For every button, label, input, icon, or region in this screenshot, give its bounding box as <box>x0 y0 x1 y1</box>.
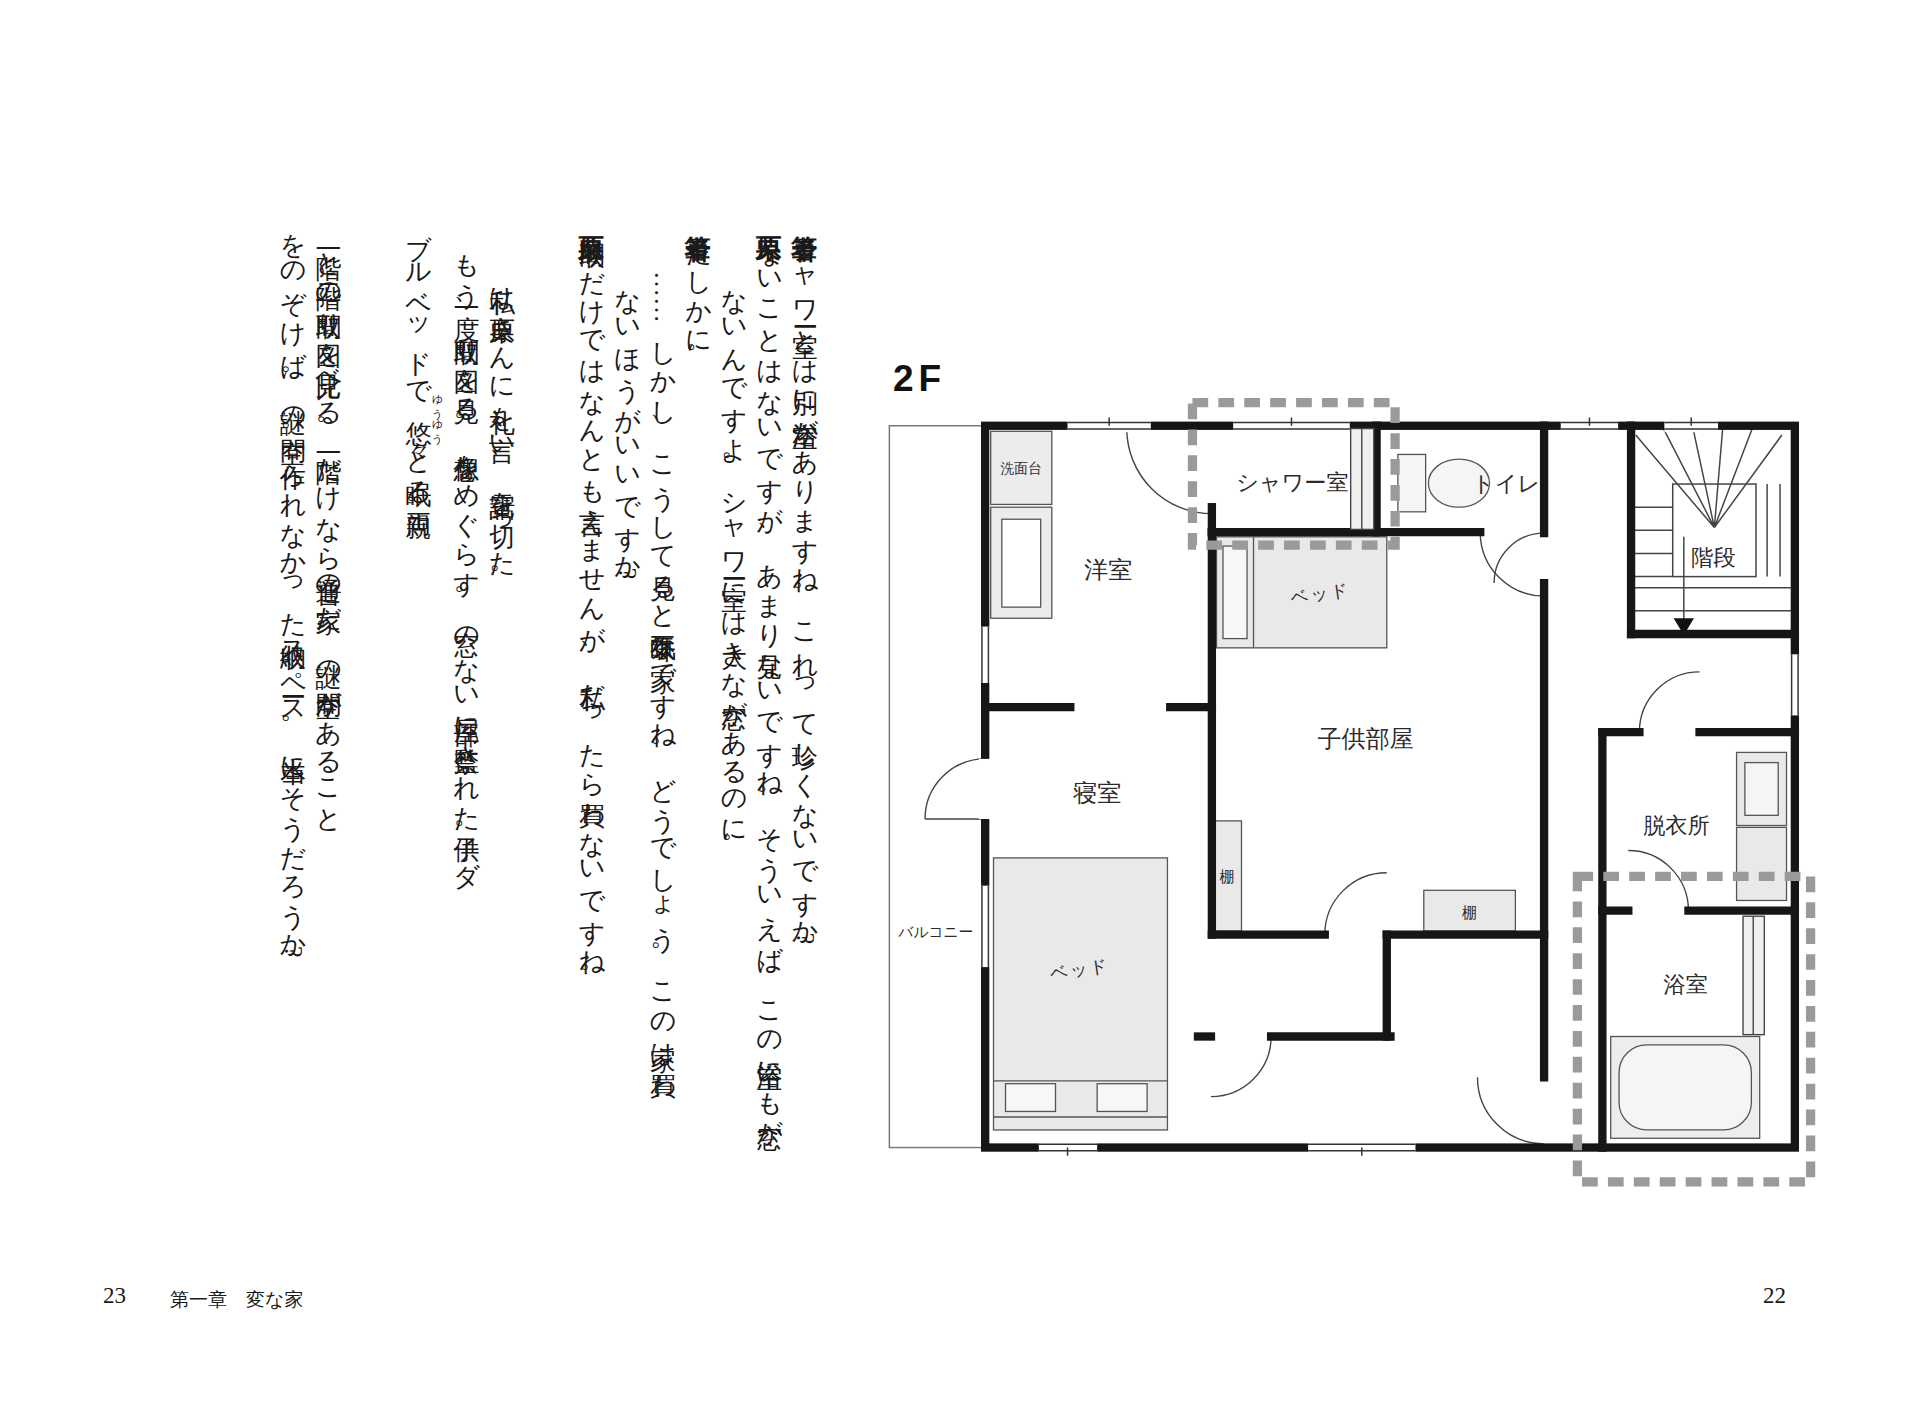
narrative-body: 一階と二階の間取り図を見比べる。一階だけなら普通の家だ。謎の空間があること <box>314 235 343 821</box>
window-left-balcony-door-gap <box>979 759 992 819</box>
narrative-column: もう一度、間取り図を見る。想像をめぐらす。窓のない部屋に監禁された子供。ダ <box>453 215 479 1255</box>
page-number-left: 23 <box>103 1283 126 1309</box>
narrative-column-ruby: ブルベッドで悠々ゆうゆうと眠る両親。 <box>405 215 444 1255</box>
label-kids-room: 子供部屋 <box>1317 725 1413 752</box>
window-top-2 <box>1233 417 1350 432</box>
stairs-icon <box>1634 429 1792 635</box>
vestibule-door-arc <box>1211 1036 1271 1096</box>
narrative-body: と眠る両親。 <box>404 433 433 518</box>
dialogue-continuation: ……しかし、こうして見ると不気味な家ですね。どうでしょう。この家は買わ <box>650 215 676 1255</box>
label-western-room: 洋室 <box>1084 556 1132 583</box>
dialogue-body: たしかに。 <box>684 223 713 368</box>
window-right-1 <box>1788 654 1801 715</box>
dialogue-column: 栗原間取りだけではなんとも言えませんが、私だったら買わないですね。 <box>579 215 605 1255</box>
narrative-body: ブルベッドで <box>404 215 433 393</box>
floor-plan: 洗面台 洋室 シャワー室 トイレ 階段 ベッド 子供部屋 棚 棚 寝室 ベッド … <box>888 398 1818 1203</box>
label-shelf-right: 棚 <box>1462 905 1477 921</box>
window-top-3 <box>1561 417 1618 432</box>
bathtub-icon <box>1611 1036 1760 1138</box>
narrative-body: 私は栗原さんに礼を言い、電話を切った。 <box>488 269 517 589</box>
counter-box <box>1737 827 1787 900</box>
toilet-door-arc <box>1480 532 1544 596</box>
dialogue-column: 筆者シャワー室とは別に浴室がありますね。これって珍しくないですか? <box>792 215 818 1255</box>
dialogue-continuation: ないんですよ。シャワー室には大きな窓があるのに。 <box>721 215 747 1255</box>
window-left-1 <box>979 627 992 683</box>
dialogue-body: 間取りだけではなんとも言えませんが、私だったら買わないですね。 <box>578 223 607 988</box>
floor-label: 2F <box>893 358 946 400</box>
dressing-door-arc <box>1639 672 1699 732</box>
left-page-text: 筆者シャワー室とは別に浴室がありますね。これって珍しくないですか? 栗原ないこと… <box>270 215 827 1255</box>
dialogue-body: ないほうがいいですか? <box>613 271 642 579</box>
label-balcony: バルコニー <box>897 924 973 940</box>
dialogue-body: ないんですよ。シャワー室には大きな窓があるのに。 <box>720 271 749 858</box>
narrative-column: 一階と二階の間取り図を見比べる。一階だけなら普通の家だ。謎の空間があること <box>315 215 341 1255</box>
ruby-annotation: 悠々ゆうゆう <box>404 393 433 433</box>
washer-icon <box>1737 752 1787 825</box>
dialogue-body: シャワー室とは別に浴室がありますね。これって珍しくないですか? <box>791 223 820 944</box>
window-left-2 <box>979 886 992 967</box>
shower-door-arc <box>1127 429 1212 514</box>
balcony <box>889 426 985 1148</box>
dialogue-column: 筆者たしかに。 <box>685 215 711 1255</box>
double-bed <box>993 858 1167 1130</box>
label-dressing-room: 脱衣所 <box>1643 813 1710 838</box>
label-shower-room: シャワー室 <box>1236 470 1349 495</box>
label-bedroom: 寝室 <box>1073 779 1121 806</box>
page-number-right: 22 <box>1763 1283 1786 1309</box>
label-bathroom: 浴室 <box>1663 972 1707 997</box>
kids-room-inner-door-arc <box>1325 873 1387 935</box>
corridor-door-arc <box>1477 1077 1544 1144</box>
speaker-label: 筆者 <box>683 215 713 217</box>
speaker-label: 栗原 <box>577 215 607 217</box>
window-bottom-2 <box>1308 1141 1415 1156</box>
running-header-chapter: 第一章 変な家 <box>170 1287 303 1313</box>
narrative-body: をのぞけば。謎の空間。作られなかった収納スペース。本当にそうだろうか? <box>279 215 308 958</box>
book-spread: { "left_page": { "page_number": "23", "c… <box>0 0 1920 1422</box>
label-stairs: 階段 <box>1691 545 1735 570</box>
kids-room-door-arc <box>1494 533 1544 583</box>
label-toilet: トイレ <box>1472 471 1540 496</box>
window-bottom-1 <box>1039 1141 1097 1156</box>
speaker-label: 栗原 <box>754 215 784 217</box>
ruby-base: 悠々 <box>404 388 433 438</box>
ruby-text: ゆうゆう <box>432 388 444 438</box>
dialogue-body: ないことはないですが、あまり見ないですね。そういえば、この浴室にも窓が <box>755 223 784 1132</box>
narrative-column: 私は栗原さんに礼を言い、電話を切った。 <box>489 215 515 1255</box>
speaker-label: 筆者 <box>790 215 820 217</box>
narrative-body: もう一度、間取り図を見る。想像をめぐらす。窓のない部屋に監禁された子供。ダ <box>452 235 481 873</box>
dialogue-continuation: ないほうがいいですか? <box>614 215 640 1255</box>
dialogue-column: 栗原ないことはないですが、あまり見ないですね。そういえば、この浴室にも窓が <box>756 215 782 1255</box>
label-shelf-left: 棚 <box>1219 869 1234 885</box>
dialogue-body: ……しかし、こうして見ると不気味な家ですね。どうでしょう。この家は買わ <box>649 271 678 1084</box>
window-top-4 <box>1664 417 1718 432</box>
narrative-column: をのぞけば。謎の空間。作られなかった収納スペース。本当にそうだろうか? <box>280 215 306 1255</box>
label-washstand: 洗面台 <box>1000 460 1042 476</box>
window-top-1 <box>1068 417 1151 432</box>
